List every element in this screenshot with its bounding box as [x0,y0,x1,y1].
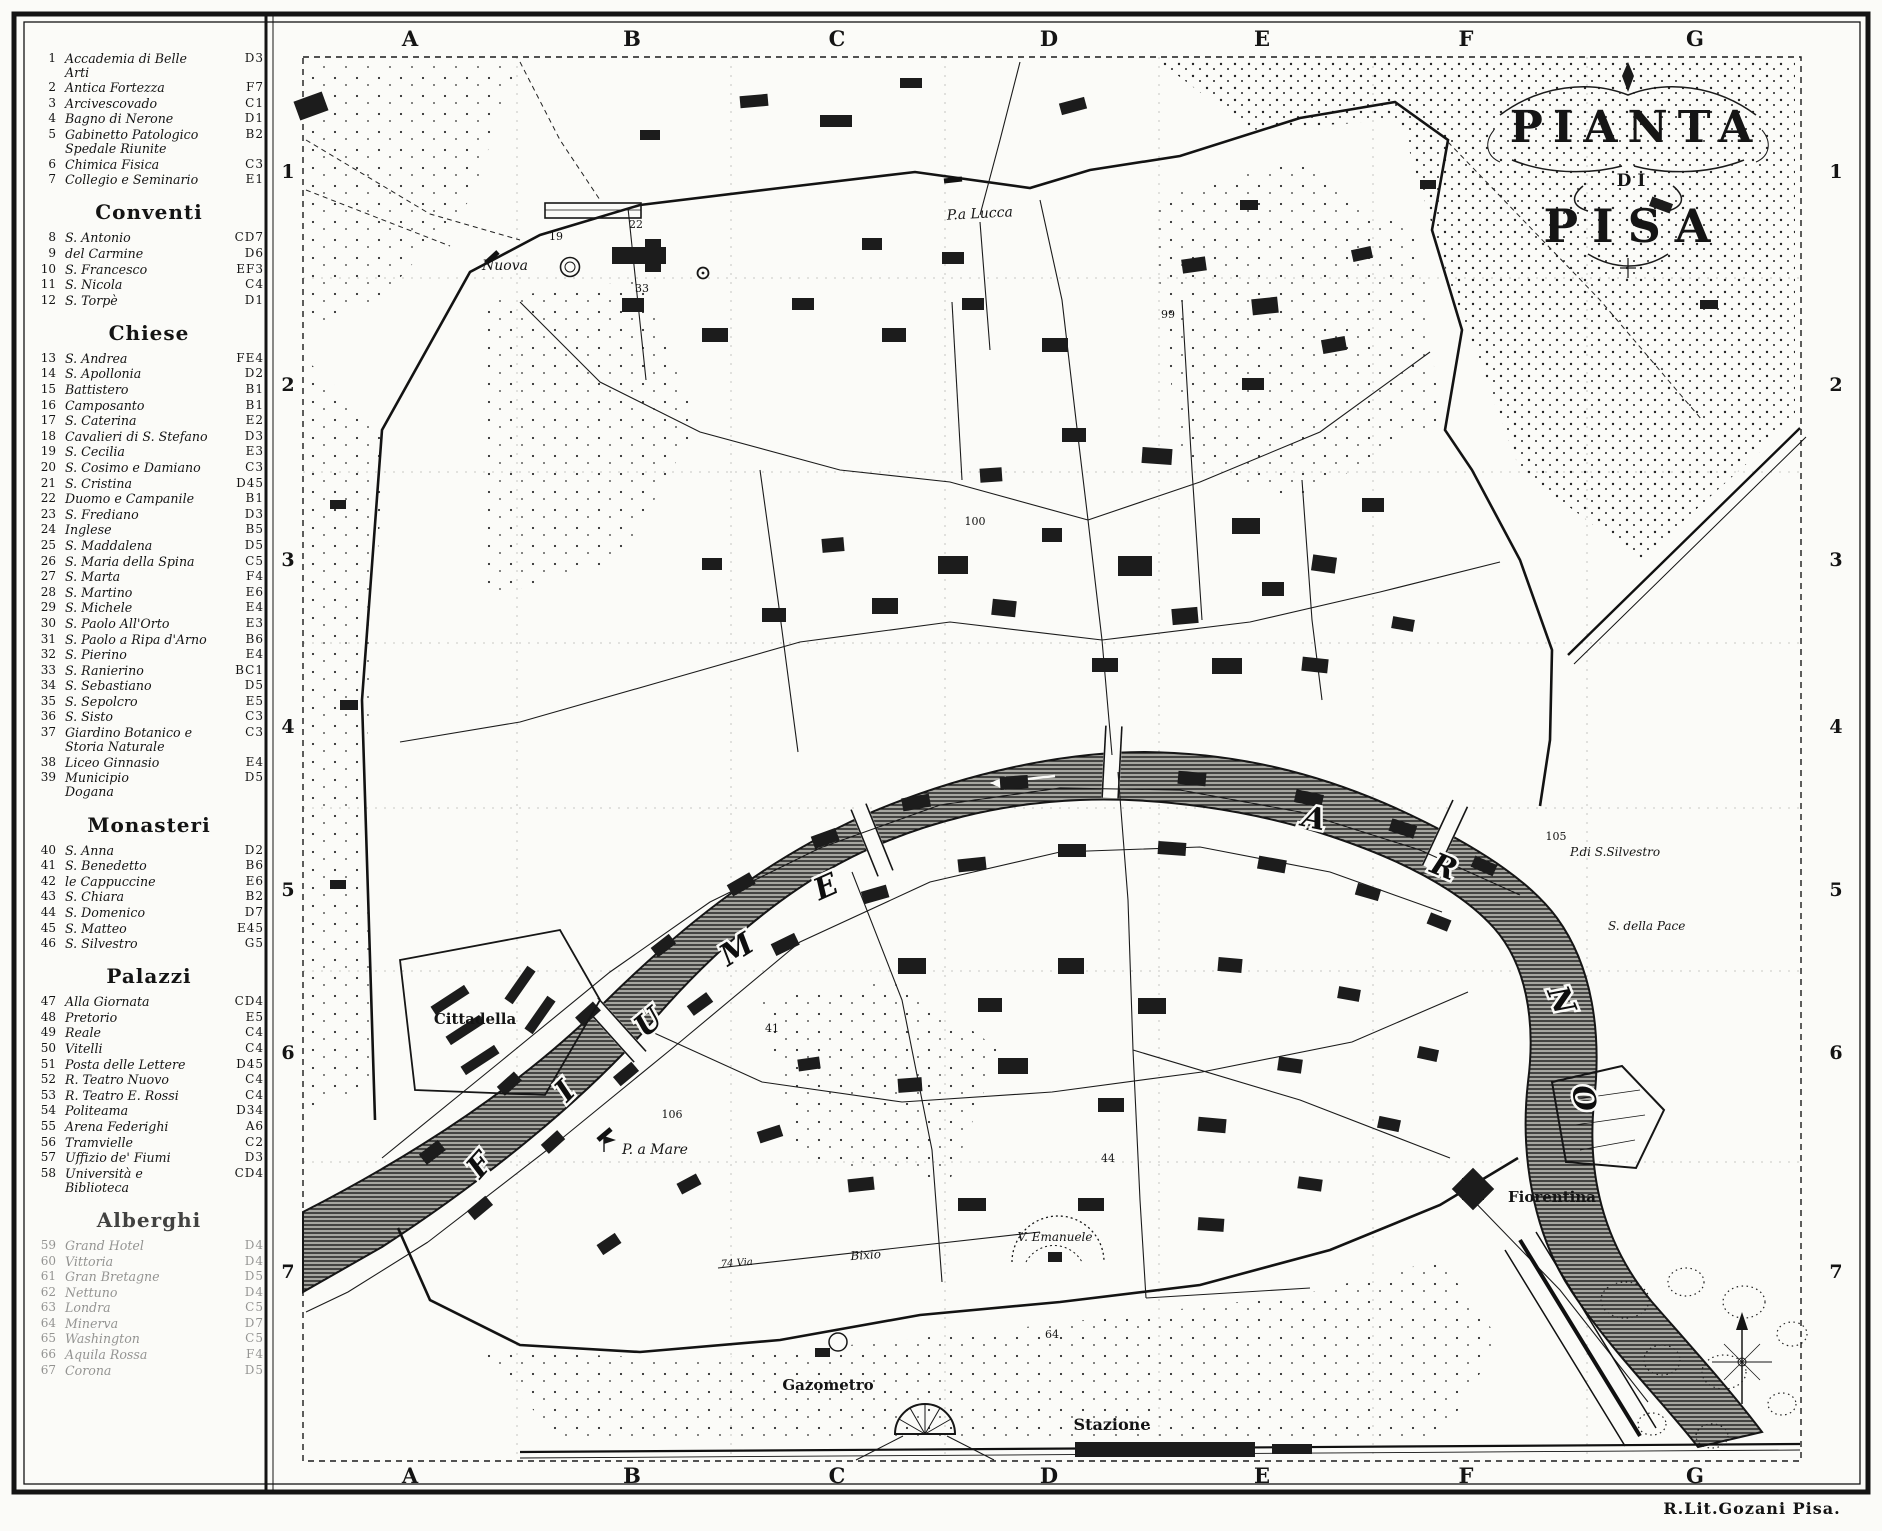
legend-item: 10 S. Francesco EF3 [34,263,264,277]
legend-item-name: S. Francesco [65,263,226,277]
legend-item: 67 Corona D5 [34,1364,264,1378]
legend-item-number: 30 [34,617,56,630]
legend-item-number: 39 [34,771,56,784]
legend-item-grid-code: BC1 [226,664,264,677]
legend-item: 37 Giardino Botanico e Storia Naturale C… [34,726,264,754]
legend-item-number: 29 [34,601,56,614]
legend-item-number: 45 [34,922,56,935]
legend-item: 52 R. Teatro Nuovo C4 [34,1073,264,1087]
legend-item-grid-code: D2 [226,367,264,380]
legend-item-grid-code: CD4 [226,1167,264,1180]
legend-item-grid-code: C5 [226,1301,264,1314]
legend-item-grid-code: D5 [226,1270,264,1283]
legend-item: 17 S. Caterina E2 [34,414,264,428]
legend-item-grid-code: C4 [226,1089,264,1102]
legend-item-number: 16 [34,399,56,412]
legend-item-number: 37 [34,726,56,739]
legend-item-name: S. Cosimo e Damiano [65,461,226,475]
svg-text:O: O [1564,1082,1603,1114]
legend-item-grid-code: D4 [226,1286,264,1299]
legend-item: 58 Università e Biblioteca CD4 [34,1167,264,1195]
legend-item-number: 18 [34,430,56,443]
legend-item-name: Battistero [65,383,226,397]
legend-item-grid-code: C4 [226,1026,264,1039]
label-porta-fiorentina: Fiorentina [1508,1188,1596,1206]
legend-item-number: 12 [34,294,56,307]
legend-section-title: Palazzi [34,964,264,988]
legend-item: 36 S. Sisto C3 [34,710,264,724]
landmark-camposanto [545,203,641,218]
legend-item: 31 S. Paolo a Ripa d'Arno B6 [34,633,264,647]
legend-item-grid-code: E6 [226,586,264,599]
legend-item-grid-code: F7 [226,81,264,94]
legend-item: 51 Posta delle Lettere D45 [34,1058,264,1072]
legend-item: 57 Uffizio de' Fiumi D3 [34,1151,264,1165]
legend-item-grid-code: A6 [226,1120,264,1133]
legend-item: 33 S. Ranierino BC1 [34,664,264,678]
legend-item-name: Arena Federighi [65,1120,226,1134]
label-via-bixio: Bixio [849,1247,881,1263]
legend-item-name: Grand Hotel [65,1239,226,1253]
legend-section-monasteri: Monasteri 40 S. Anna D2 41 S. Benedetto … [34,813,264,952]
legend-item-grid-code: E6 [226,875,264,888]
legend-item: 12 S. Torpè D1 [34,294,264,308]
legend-section-title: Monasteri [34,813,264,837]
map-title-line1: PIANTA [1510,102,1763,153]
legend-section-chiese: Chiese 13 S. Andrea FE4 14 S. Apollonia … [34,321,264,800]
legend-item: 13 S. Andrea FE4 [34,352,264,366]
legend-item: 59 Grand Hotel D4 [34,1239,264,1253]
legend-item-name: S. Pierino [65,648,226,662]
legend-item-grid-code: D3 [226,508,264,521]
legend-item-number: 33 [34,664,56,677]
legend-item-number: 52 [34,1073,56,1086]
legend-item-name: S. Chiara [65,890,226,904]
legend-item-name: Collegio e Seminario [65,173,226,187]
legend-item-name: S. Marta [65,570,226,584]
legend-item-name: S. Frediano [65,508,226,522]
lithographer-credit: R.Lit.Gozani Pisa. [1663,1499,1840,1518]
legend-item-number: 25 [34,539,56,552]
svg-text:6: 6 [1829,1042,1842,1064]
legend-item-number: 28 [34,586,56,599]
legend-item: 54 Politeama D34 [34,1104,264,1118]
map-title-line3: PISA [1543,199,1724,253]
svg-text:B: B [623,1463,641,1488]
legend-item-grid-code: D1 [226,112,264,125]
legend-item-grid-code: E3 [226,445,264,458]
legend-item-grid-code: FE4 [226,352,264,365]
legend-item-grid-code: D7 [226,906,264,919]
legend-item-name: S. Domenico [65,906,226,920]
legend-item-grid-code: E4 [226,756,264,769]
legend-item-name: Uffizio de' Fiumi [65,1151,226,1165]
legend-item: 46 S. Silvestro G5 [34,937,264,951]
legend-item: 8 S. Antonio CD7 [34,231,264,245]
landmark-duomo [612,239,666,272]
legend-item-name: Duomo e Campanile [65,492,226,506]
label-porta-nuova: Nuova [481,258,528,274]
legend-item: 7 Collegio e Seminario E1 [34,173,264,187]
legend-item-grid-code: D3 [226,1151,264,1164]
grid-numbers-right: 1 2 3 4 5 6 7 [1829,161,1842,1283]
svg-text:E: E [1254,1463,1270,1488]
landmark-porta-fiorentina [1452,1168,1494,1210]
svg-text:G: G [1686,26,1704,51]
legend-item-name: S. Maddalena [65,539,226,553]
legend-item-name: Università e Biblioteca [65,1167,226,1195]
legend-item: 66 Aquila Rossa F4 [34,1348,264,1362]
map-sheet: 1 Accademia di Belle Arti D3 2 Antica Fo… [0,0,1882,1531]
legend-item-grid-code: B1 [226,399,264,412]
legend-item-name: S. Martino [65,586,226,600]
legend-item: 24 Inglese B5 [34,523,264,537]
label-porta-a-mare: P. a Mare [621,1142,688,1158]
legend-item-number: 22 [34,492,56,505]
legend-item-grid-code: B2 [226,890,264,903]
svg-text:4: 4 [281,716,294,738]
legend-item-grid-code: CD4 [226,995,264,1008]
legend-item: 35 S. Sepolcro E5 [34,695,264,709]
legend-item-name: Posta delle Lettere [65,1058,226,1072]
legend-item-name: Camposanto [65,399,226,413]
legend-item-number: 63 [34,1301,56,1314]
legend-item-number: 66 [34,1348,56,1361]
legend-item-name: S. Paolo All'Orto [65,617,226,631]
legend-item-grid-code: C2 [226,1136,264,1149]
legend-item-number: 60 [34,1255,56,1268]
legend-item-grid-code: D4 [226,1239,264,1252]
legend-item: 49 Reale C4 [34,1026,264,1040]
legend-item-number: 13 [34,352,56,365]
legend-item-number: 14 [34,367,56,380]
legend-item-grid-code: D1 [226,294,264,307]
legend-list: 8 S. Antonio CD7 9 del Carmine D6 10 S. … [34,231,264,307]
legend-item-grid-code: C1 [226,97,264,110]
label-porta-a-lucca: P.a Lucca [945,204,1013,223]
legend-list: 1 Accademia di Belle Arti D3 2 Antica Fo… [34,52,264,188]
legend-item-grid-code: D2 [226,844,264,857]
map-number: 100 [965,515,986,528]
legend-item-number: 31 [34,633,56,646]
legend-item-name: Corona [65,1364,226,1378]
legend-item-grid-code: E2 [226,414,264,427]
svg-text:D: D [1040,26,1058,51]
legend-item-grid-code: E5 [226,695,264,708]
legend-item-number: 34 [34,679,56,692]
legend-item: 43 S. Chiara B2 [34,890,264,904]
legend-item: 34 S. Sebastiano D5 [34,679,264,693]
legend-item-name: Nettuno [65,1286,226,1300]
svg-text:3: 3 [1829,549,1842,571]
legend-item: 65 Washington C5 [34,1332,264,1346]
legend-section-title: Conventi [34,200,264,224]
legend-item-name: Londra [65,1301,226,1315]
svg-text:5: 5 [1829,879,1842,901]
legend-item: 18 Cavalieri di S. Stefano D3 [34,430,264,444]
legend-item-number: 32 [34,648,56,661]
label-v-emanuele: V. Emanuele [1018,1230,1093,1244]
legend-item-name: Minerva [65,1317,226,1331]
legend-item-grid-code: D4 [226,1255,264,1268]
legend-item: 30 S. Paolo All'Orto E3 [34,617,264,631]
legend-item-number: 2 [34,81,56,94]
legend-item: 56 Tramvielle C2 [34,1136,264,1150]
legend-panel: 1 Accademia di Belle Arti D3 2 Antica Fo… [34,50,264,1379]
legend-item-name: Gabinetto Patologico Spedale Riunite [65,128,226,156]
legend-item-name: S. Nicola [65,278,226,292]
legend-item-number: 7 [34,173,56,186]
legend-item-number: 19 [34,445,56,458]
legend-item-name: Vitelli [65,1042,226,1056]
legend-section-conventi: Conventi 8 S. Antonio CD7 9 del Carmine … [34,200,264,307]
legend-item-number: 58 [34,1167,56,1180]
legend-item: 61 Gran Bretagne D5 [34,1270,264,1284]
legend-item-grid-code: F4 [226,1348,264,1361]
svg-text:C: C [829,1463,846,1488]
svg-text:D: D [1040,1463,1058,1488]
legend-item-name: Antica Fortezza [65,81,226,95]
legend-item: 9 del Carmine D6 [34,247,264,261]
legend-item-grid-code: C4 [226,1073,264,1086]
legend-item: 42 le Cappuccine E6 [34,875,264,889]
legend-item-grid-code: C5 [226,555,264,568]
legend-item-grid-code: D34 [226,1104,264,1117]
grid-numbers-left: 1 2 3 4 5 6 7 [281,161,294,1283]
legend-item: 55 Arena Federighi A6 [34,1120,264,1134]
legend-item: 64 Minerva D7 [34,1317,264,1331]
legend-item-name: Tramvielle [65,1136,226,1150]
landmark-leaning-tower [698,268,709,279]
legend-item-number: 46 [34,937,56,950]
legend-item-name: Bagno di Nerone [65,112,226,126]
legend-item-grid-code: B5 [226,523,264,536]
legend-section-title: Chiese [34,321,264,345]
legend-item-number: 4 [34,112,56,125]
legend-item-grid-code: E4 [226,601,264,614]
legend-item-name: S. Torpè [65,294,226,308]
legend-item-grid-code: E5 [226,1011,264,1024]
legend-item-grid-code: D7 [226,1317,264,1330]
legend-item-number: 49 [34,1026,56,1039]
legend-item-grid-code: E4 [226,648,264,661]
legend-item: 3 Arcivescovado C1 [34,97,264,111]
legend-item-name: S. Ranierino [65,664,226,678]
legend-item-number: 36 [34,710,56,723]
legend-item-grid-code: G5 [226,937,264,950]
label-s-della-pace: S. della Pace [1608,919,1685,933]
legend-item-name: Aquila Rossa [65,1348,226,1362]
legend-item: 19 S. Cecilia E3 [34,445,264,459]
legend-item-number: 42 [34,875,56,888]
legend-item-name: Giardino Botanico e Storia Naturale [65,726,226,754]
legend-item-number: 24 [34,523,56,536]
svg-text:G: G [1686,1463,1704,1488]
legend-item-grid-code: D5 [226,1364,264,1377]
legend-item: 40 S. Anna D2 [34,844,264,858]
legend-item: 2 Antica Fortezza F7 [34,81,264,95]
legend-item: 44 S. Domenico D7 [34,906,264,920]
svg-text:1: 1 [281,161,294,183]
legend-item-name: S. Silvestro [65,937,226,951]
legend-item-number: 62 [34,1286,56,1299]
legend-section-title: Alberghi [34,1208,264,1232]
svg-text:A: A [401,1463,419,1488]
legend-item-number: 6 [34,158,56,171]
legend-item-grid-code: D5 [226,771,264,784]
legend-item: 26 S. Maria della Spina C5 [34,555,264,569]
legend-item: 6 Chimica Fisica C3 [34,158,264,172]
legend-item: 32 S. Pierino E4 [34,648,264,662]
svg-text:2: 2 [1829,374,1842,396]
legend-item-name: Vittoria [65,1255,226,1269]
legend-item-name: Alla Giornata [65,995,226,1009]
label-via-74: 74 Via [720,1257,753,1270]
legend-item: 60 Vittoria D4 [34,1255,264,1269]
landmark-battistero [561,258,580,277]
legend-item-number: 43 [34,890,56,903]
legend-item-name: S. Cecilia [65,445,226,459]
legend-item-name: Washington [65,1332,226,1346]
legend-item: 39 Municipio Dogana D5 [34,771,264,799]
legend-item-name: le Cappuccine [65,875,226,889]
legend-item-grid-code: E3 [226,617,264,630]
legend-item-number: 59 [34,1239,56,1252]
legend-item-name: Inglese [65,523,226,537]
legend-item-number: 17 [34,414,56,427]
legend-item-grid-code: D5 [226,539,264,552]
legend-item-grid-code: C3 [226,158,264,171]
legend-item-number: 40 [34,844,56,857]
svg-text:3: 3 [281,549,294,571]
legend-item: 5 Gabinetto Patologico Spedale Riunite B… [34,128,264,156]
legend-item-grid-code: C3 [226,710,264,723]
legend-item-number: 64 [34,1317,56,1330]
legend-item-number: 65 [34,1332,56,1345]
legend-item-number: 67 [34,1364,56,1377]
legend-item-number: 8 [34,231,56,244]
legend-item-number: 47 [34,995,56,1008]
legend-item-name: S. Sebastiano [65,679,226,693]
svg-text:E: E [1254,26,1270,51]
legend-item-number: 48 [34,1011,56,1024]
legend-item-name: Reale [65,1026,226,1040]
legend-item-name: S. Sepolcro [65,695,226,709]
legend-item: 45 S. Matteo E45 [34,922,264,936]
legend-item-number: 41 [34,859,56,872]
legend-item-name: Municipio Dogana [65,771,226,799]
legend-item-grid-code: C3 [226,726,264,739]
legend-item-grid-code: C4 [226,278,264,291]
legend-item-number: 27 [34,570,56,583]
map-number: 41 [765,1022,779,1035]
map-number: 33 [635,282,649,295]
legend-item-name: S. Matteo [65,922,226,936]
svg-text:7: 7 [281,1261,294,1283]
legend-item-number: 11 [34,278,56,291]
svg-text:6: 6 [281,1042,294,1064]
legend-item-number: 53 [34,1089,56,1102]
legend-item-number: 23 [34,508,56,521]
legend-item-grid-code: F4 [226,570,264,583]
legend-item-grid-code: D3 [226,52,264,65]
legend-item: 14 S. Apollonia D2 [34,367,264,381]
legend-item: 63 Londra C5 [34,1301,264,1315]
legend-list: 47 Alla Giornata CD4 48 Pretorio E5 49 R… [34,995,264,1195]
map-number: 19 [549,230,563,243]
legend-item-number: 9 [34,247,56,260]
svg-text:4: 4 [1829,716,1842,738]
legend-item-name: S. Caterina [65,414,226,428]
legend-item: 27 S. Marta F4 [34,570,264,584]
legend-item: 25 S. Maddalena D5 [34,539,264,553]
legend-item-grid-code: D45 [226,1058,264,1071]
legend-item-name: Liceo Ginnasio [65,756,226,770]
legend-item-number: 26 [34,555,56,568]
legend-item: 41 S. Benedetto B6 [34,859,264,873]
legend-item-grid-code: E1 [226,173,264,186]
svg-text:1: 1 [1829,161,1842,183]
map-number: 44 [1101,1152,1115,1165]
legend-list: 59 Grand Hotel D4 60 Vittoria D4 61 Gran… [34,1239,264,1378]
legend-item: 50 Vitelli C4 [34,1042,264,1056]
label-105: 105 [1546,830,1567,843]
legend-item: 1 Accademia di Belle Arti D3 [34,52,264,80]
legend-item-grid-code: EF3 [226,263,264,276]
label-cittadella: Cittadella [434,1010,517,1028]
legend-item-number: 61 [34,1270,56,1283]
svg-text:F: F [1459,1463,1474,1488]
legend-item-grid-code: C3 [226,461,264,474]
legend-item-name: Politeama [65,1104,226,1118]
legend-item-number: 51 [34,1058,56,1071]
legend-item: 21 S. Cristina D45 [34,477,264,491]
legend-item-name: Chimica Fisica [65,158,226,172]
legend-item-number: 54 [34,1104,56,1117]
svg-text:C: C [829,26,846,51]
legend-item: 62 Nettuno D4 [34,1286,264,1300]
legend-item-name: S. Antonio [65,231,226,245]
legend-item-number: 15 [34,383,56,396]
legend-item-number: 56 [34,1136,56,1149]
legend-item-number: 38 [34,756,56,769]
legend-item-number: 1 [34,52,56,65]
landmark-station [1075,1442,1312,1457]
legend-item: 23 S. Frediano D3 [34,508,264,522]
svg-text:5: 5 [281,879,294,901]
grid-letters-top: A B C D E F G [401,26,1704,51]
legend-section-palazzi: Palazzi 47 Alla Giornata CD4 48 Pretorio… [34,964,264,1195]
legend-item-number: 35 [34,695,56,708]
legend-item-name: S. Anna [65,844,226,858]
legend-item-name: Accademia di Belle Arti [65,52,226,80]
legend-item-grid-code: B1 [226,492,264,505]
svg-text:7: 7 [1829,1261,1842,1283]
legend-item-number: 44 [34,906,56,919]
legend-item: 11 S. Nicola C4 [34,278,264,292]
label-stazione: Stazione [1074,1415,1151,1434]
legend-item: 4 Bagno di Nerone D1 [34,112,264,126]
legend-item: 29 S. Michele E4 [34,601,264,615]
legend-item-number: 3 [34,97,56,110]
legend-item: 16 Camposanto B1 [34,399,264,413]
legend-item: 15 Battistero B1 [34,383,264,397]
svg-text:A: A [401,26,419,51]
legend-item: 47 Alla Giornata CD4 [34,995,264,1009]
legend-item-name: R. Teatro Nuovo [65,1073,226,1087]
legend-item-grid-code: C5 [226,1332,264,1345]
legend-item-grid-code: D5 [226,679,264,692]
